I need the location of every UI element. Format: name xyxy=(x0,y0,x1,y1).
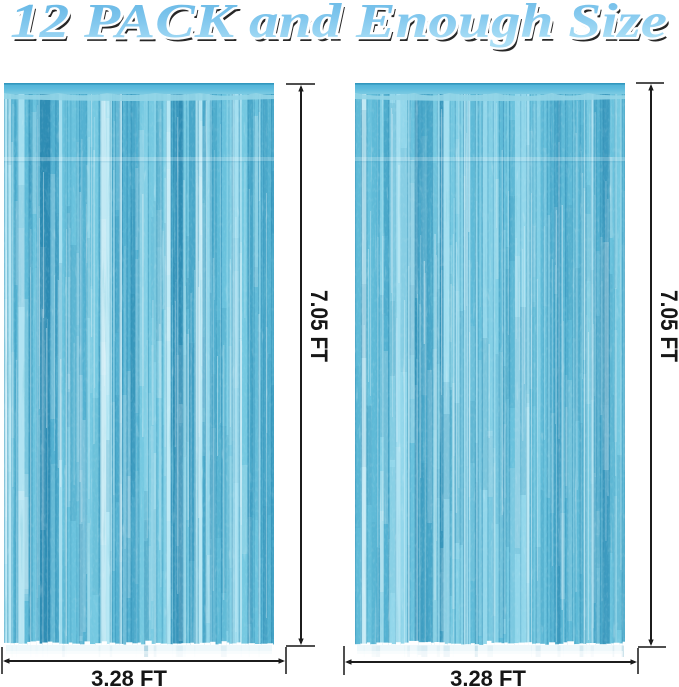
svg-text:3.28 FT: 3.28 FT xyxy=(450,666,526,687)
svg-text:7.05 FT: 7.05 FT xyxy=(305,290,332,362)
svg-text:7.05 FT: 7.05 FT xyxy=(655,290,679,362)
svg-text:3.28 FT: 3.28 FT xyxy=(91,666,167,687)
